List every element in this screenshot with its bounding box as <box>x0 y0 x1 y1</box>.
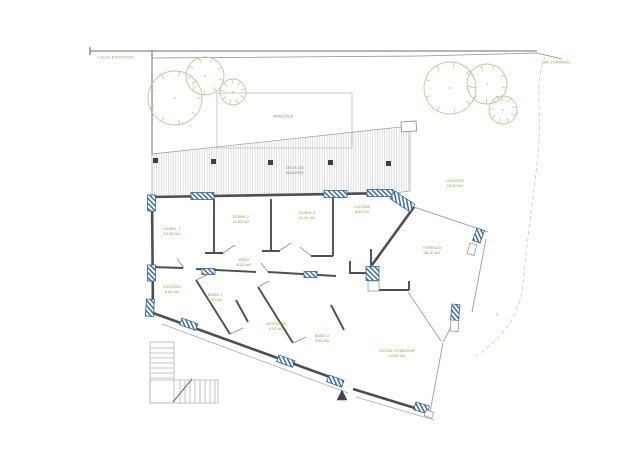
tree-tick <box>179 71 180 76</box>
tree-trunk-dot <box>502 109 504 111</box>
tree-tick <box>192 112 196 115</box>
room-label-galeria: GALERIA 28.40 m2 <box>446 179 463 189</box>
room-label-bano2: BAÑO 2 3.60 m2 <box>315 334 330 344</box>
tree-tick <box>454 109 455 114</box>
lot-boundary-label: LIM. TERRENO <box>542 61 570 66</box>
room-area: 9.80 m2 <box>163 290 181 295</box>
room-area: 6.40 m2 <box>237 263 251 268</box>
tree-tick <box>162 75 165 79</box>
tree-tick <box>192 81 196 84</box>
room-label-estar: ESTAR COMEDOR 34.50 m2 <box>379 349 414 359</box>
tree-tick <box>179 120 180 125</box>
plan-drawing <box>0 0 640 453</box>
room-area: 11.20 m2 <box>299 216 316 221</box>
tree-tick <box>426 96 431 98</box>
tree-tick <box>220 91 225 92</box>
tree-tick <box>512 106 517 107</box>
tree-tick <box>222 96 226 99</box>
tree-tick <box>238 81 241 85</box>
room-area: 34.50 m2 <box>379 354 414 359</box>
terrace-edges <box>162 207 488 420</box>
tree-trunk-dot <box>174 97 176 99</box>
room-label-dorm2: DORM. 2 11.80 m2 <box>233 215 250 225</box>
tree-tick <box>499 119 500 124</box>
room-area: 28.40 m2 <box>446 184 463 189</box>
pergola-label: PERGOLA <box>273 115 292 120</box>
tree-tick <box>186 78 191 79</box>
trees <box>148 57 517 125</box>
tree-tick <box>229 100 230 105</box>
tree-tick <box>500 75 504 77</box>
tree-trunk-dot <box>204 75 206 77</box>
street-label: CALLE EXISTENTE <box>98 56 134 61</box>
tree-tick <box>241 89 246 90</box>
tree-tick <box>481 65 483 70</box>
tree-tick <box>466 101 470 104</box>
room-label-dorm1: DORM. 1 12.50 m2 <box>164 227 181 237</box>
room-area: 11.80 m2 <box>233 220 250 225</box>
tree-trunk-dot <box>486 83 488 85</box>
tree-tick <box>162 117 165 121</box>
room-area: 46.20 m2 <box>423 251 442 256</box>
room-label-dorm3: DORM. 3 11.20 m2 <box>299 211 316 221</box>
deck-label-line2: MADERA <box>286 171 304 176</box>
staircase <box>150 342 218 403</box>
tree-tick <box>219 79 224 80</box>
room-label-estudio: ESTUDIO 9.80 m2 <box>163 285 181 295</box>
tree-tick <box>224 83 227 87</box>
room-area: 8.60 m2 <box>354 210 370 215</box>
floor-plan-canvas: CALLE EXISTENTE LIM. TERRENO PERGOLA DEC… <box>0 0 640 453</box>
tree-tick <box>240 96 244 98</box>
tree-tick <box>213 87 216 91</box>
tree-trunk-dot <box>232 91 234 93</box>
tree-tick <box>189 66 193 69</box>
tree-tick <box>507 118 509 123</box>
tree-tick <box>199 58 200 63</box>
entry-arrow-icon <box>337 390 347 400</box>
room-label-terraza: TERRAZA 46.20 m2 <box>423 246 442 256</box>
room-area: 12.50 m2 <box>164 232 181 237</box>
deck-hatch <box>152 121 417 197</box>
deck-label: DECK DE MADERA <box>286 166 304 176</box>
tree-tick <box>511 114 516 116</box>
room-area: 3.60 m2 <box>315 339 330 344</box>
tree-tick <box>493 65 495 70</box>
tree-trunk-dot <box>449 87 451 89</box>
tree-tick <box>492 115 496 118</box>
exterior-walls <box>152 193 428 412</box>
tree-tick <box>466 71 470 74</box>
tree-tick <box>236 99 238 104</box>
tree-tick <box>217 67 221 69</box>
tree-tick <box>210 59 212 64</box>
room-area: 4.20 m2 <box>266 327 286 332</box>
tree-tick <box>437 66 440 70</box>
tree-tick <box>508 99 511 103</box>
tree-tick <box>437 106 439 110</box>
tree-tick <box>467 86 472 87</box>
tree-tick <box>425 80 430 82</box>
room-label-bano1: BAÑO 1 3.40 m2 <box>208 293 223 303</box>
contour-mark-label: 1 <box>496 313 498 318</box>
room-area: 3.40 m2 <box>208 298 223 303</box>
tree-tick <box>453 62 454 67</box>
tree-tick <box>502 87 507 88</box>
room-label-vestidor: VESTIDOR 4.20 m2 <box>266 322 286 332</box>
tree-tick <box>192 86 195 90</box>
room-label-cocina: COCINA 8.60 m2 <box>354 205 370 215</box>
column-caps <box>368 243 477 418</box>
room-label-paso: PASO 6.40 m2 <box>237 258 251 268</box>
